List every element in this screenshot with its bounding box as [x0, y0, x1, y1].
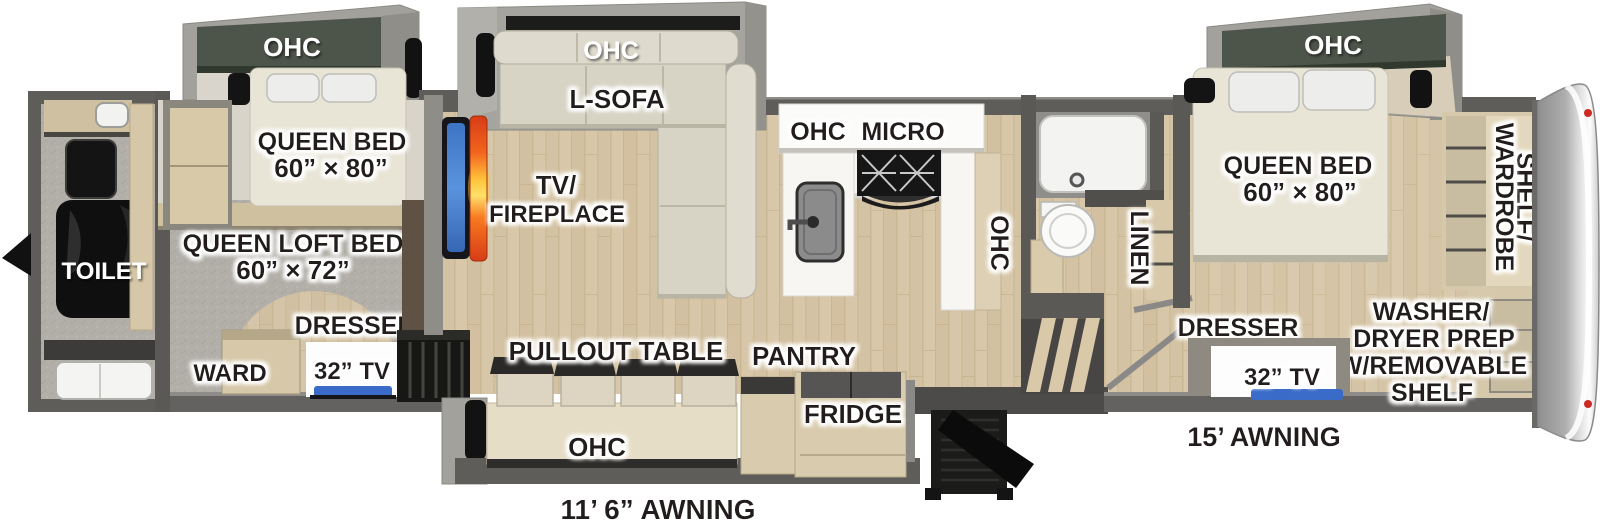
- svg-text:32” TV: 32” TV: [314, 358, 390, 385]
- svg-text:OHC: OHC: [790, 118, 846, 146]
- svg-text:MICRO: MICRO: [861, 118, 944, 146]
- svg-text:FRIDGE: FRIDGE: [804, 399, 902, 429]
- svg-text:11’ 6” AWNING: 11’ 6” AWNING: [560, 494, 755, 520]
- svg-text:DRYER PREP: DRYER PREP: [1353, 325, 1515, 353]
- svg-text:L-SOFA: L-SOFA: [569, 84, 665, 114]
- svg-text:WASHER/: WASHER/: [1373, 298, 1490, 326]
- svg-text:QUEEN LOFT BED: QUEEN LOFT BED: [183, 230, 404, 258]
- svg-text:PULLOUT TABLE: PULLOUT TABLE: [509, 336, 724, 366]
- svg-text:SHELF: SHELF: [1391, 379, 1473, 407]
- svg-text:WARDROBE: WARDROBE: [1490, 123, 1518, 272]
- svg-text:TV/: TV/: [536, 170, 576, 200]
- svg-text:WARD: WARD: [193, 360, 266, 387]
- svg-text:OHC: OHC: [1304, 30, 1362, 60]
- svg-text:OHC: OHC: [583, 37, 639, 65]
- svg-text:15’ AWNING: 15’ AWNING: [1187, 422, 1341, 452]
- svg-text:OHC: OHC: [985, 215, 1013, 271]
- svg-text:OHC: OHC: [263, 32, 321, 62]
- svg-text:LINEN: LINEN: [1125, 211, 1153, 286]
- svg-text:60” × 72”: 60” × 72”: [236, 255, 349, 285]
- svg-text:PANTRY: PANTRY: [752, 341, 856, 371]
- svg-text:FIREPLACE: FIREPLACE: [489, 201, 625, 228]
- svg-text:QUEEN BED: QUEEN BED: [258, 128, 407, 156]
- svg-text:60” × 80”: 60” × 80”: [1243, 177, 1356, 207]
- svg-text:OHC: OHC: [568, 432, 626, 462]
- svg-text:QUEEN BED: QUEEN BED: [1224, 152, 1373, 180]
- svg-text:32” TV: 32” TV: [1244, 364, 1320, 391]
- svg-text:60” × 80”: 60” × 80”: [274, 153, 387, 183]
- svg-text:W/REMOVABLE: W/REMOVABLE: [1339, 352, 1527, 380]
- svg-text:TOILET: TOILET: [62, 258, 147, 285]
- svg-text:DRESSER: DRESSER: [1178, 314, 1299, 342]
